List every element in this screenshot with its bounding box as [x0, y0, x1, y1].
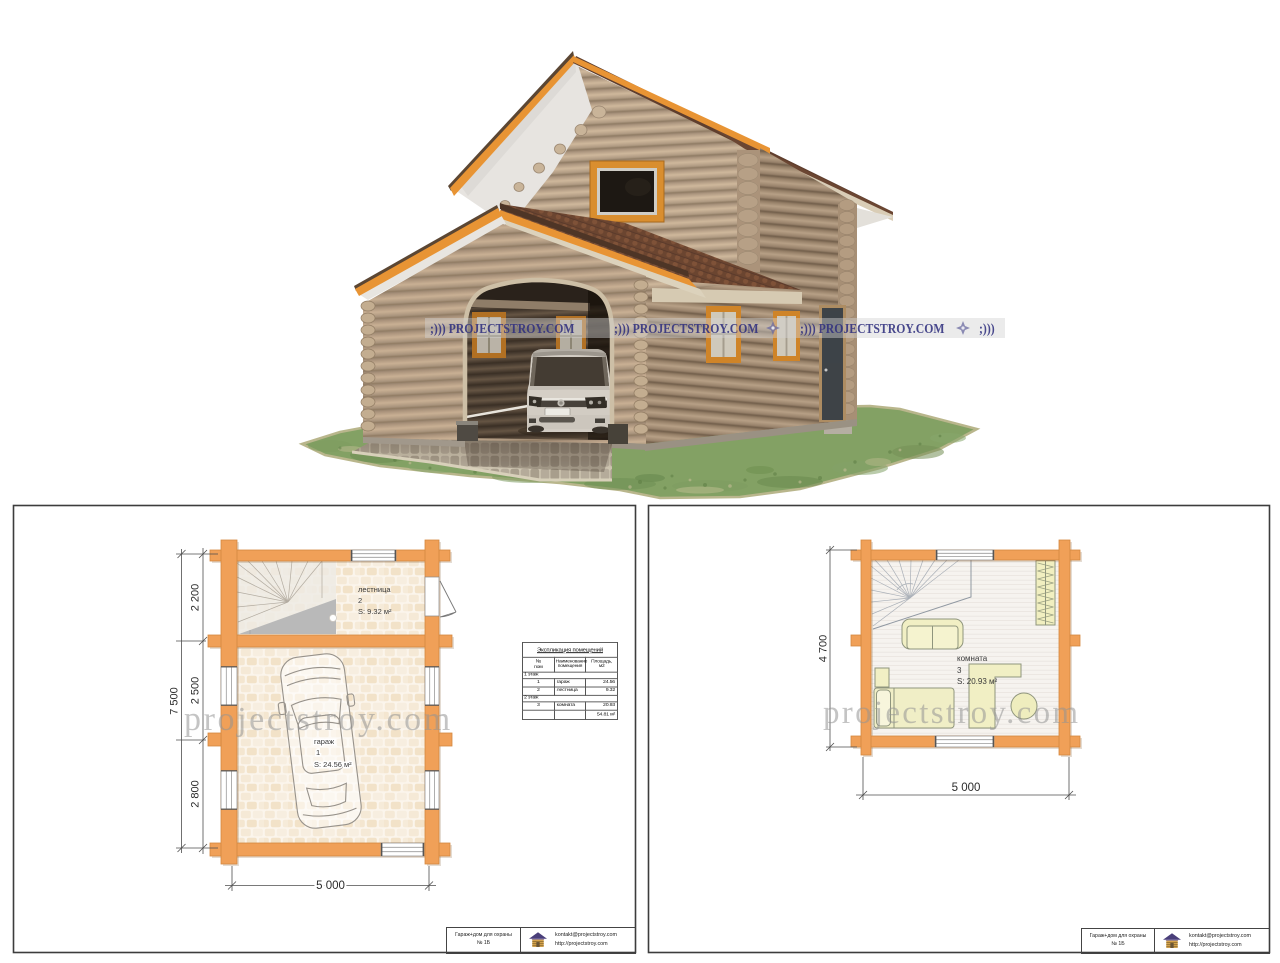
svg-text:7 500: 7 500 — [169, 687, 181, 715]
svg-text:2 200: 2 200 — [190, 584, 202, 612]
svg-text:S: 9.32 м²: S: 9.32 м² — [358, 607, 392, 616]
svg-text:5 000: 5 000 — [952, 782, 981, 794]
svg-text:3: 3 — [957, 666, 962, 675]
svg-text:5 000: 5 000 — [316, 880, 345, 892]
svg-text:1: 1 — [316, 748, 320, 757]
svg-text:S: 24.56 м²: S: 24.56 м² — [314, 760, 352, 769]
svg-text:2 800: 2 800 — [190, 780, 202, 808]
svg-text:4 700: 4 700 — [818, 635, 830, 663]
svg-text:лестница: лестница — [358, 585, 391, 594]
svg-text:гараж: гараж — [314, 737, 334, 746]
svg-text:S: 20.93 м²: S: 20.93 м² — [957, 677, 998, 686]
svg-text:комната: комната — [957, 654, 988, 663]
svg-text:2: 2 — [358, 596, 362, 605]
